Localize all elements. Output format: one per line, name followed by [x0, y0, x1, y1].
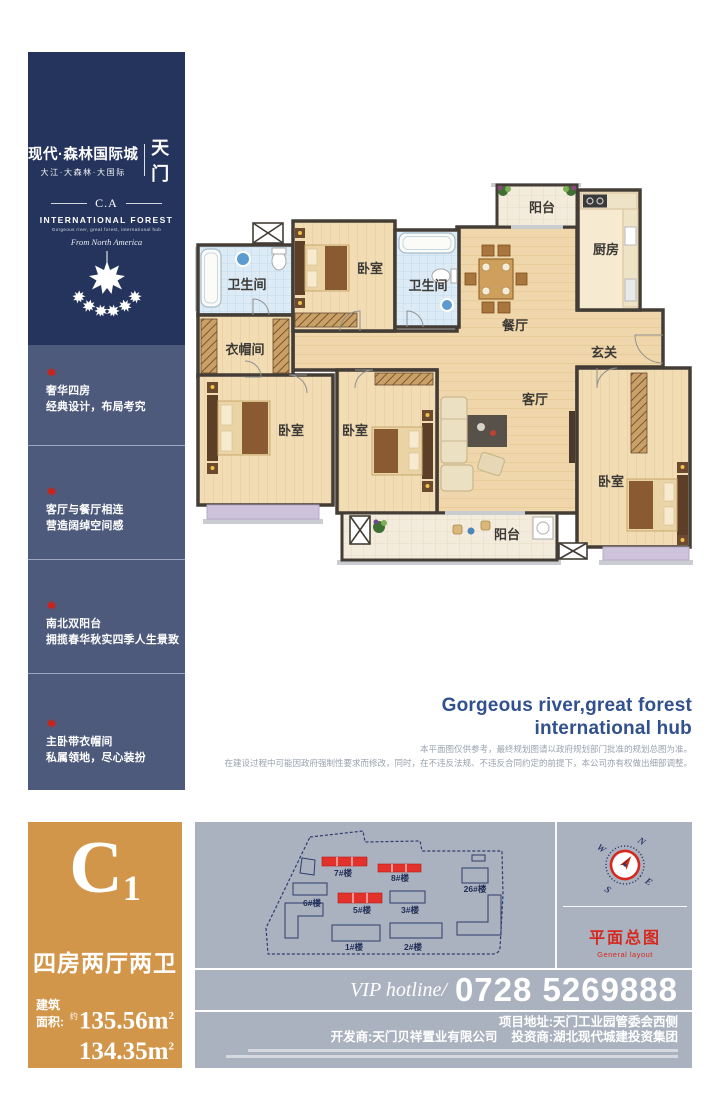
project-address: 项目地址:天门工业园管委会西侧 [195, 1015, 678, 1030]
panel-vertical-divider [555, 822, 557, 968]
building-label-2: 2#楼 [404, 942, 422, 952]
brand-en-tagline: Gorgeous river, great forest, internatio… [52, 227, 161, 232]
compass-divider [563, 906, 687, 907]
red-leaf-icon [46, 367, 57, 378]
label-balcony-bottom: 阳台 [494, 527, 520, 542]
label-bath1: 卫生间 [227, 277, 266, 292]
developer: 开发商:天门贝祥置业有限公司 [331, 1030, 498, 1044]
selling-point-3-line2: 拥揽春华秋实四季人生景致 [46, 632, 185, 648]
label-dining: 餐厅 [501, 318, 528, 333]
legend-title: 平面总图 [563, 924, 687, 948]
compass-icon: N E S W [580, 826, 670, 904]
selling-point-1-line1: 奢华四房 [46, 383, 185, 399]
brand-divider [144, 144, 145, 176]
vip-hotline: VIP hotline/ 0728 5269888 [195, 970, 692, 1010]
site-plan: 7#楼 8#楼 26#楼 6#楼 5#楼 3#楼 1#楼 2#楼 [250, 828, 515, 966]
bay-sill-left [207, 505, 319, 519]
label-living: 客厅 [522, 392, 548, 407]
tagline-line1: Gorgeous river,great forest [442, 694, 692, 717]
brand-monogram: C.A [95, 196, 118, 211]
red-leaf-icon [46, 600, 57, 611]
investor: 投资商:湖北现代城建投资集团 [511, 1030, 678, 1044]
selling-point-1: 奢华四房 经典设计，布局考究 [28, 345, 185, 445]
building-label-1: 1#楼 [345, 942, 363, 952]
label-kitchen: 厨房 [593, 242, 619, 257]
sidebar: 现代·森林国际城 大江·大森林·大国际 天门 C.A INTERNATIONAL… [28, 52, 185, 790]
unit-code: C1 [28, 828, 182, 928]
disclaimer: 本平面图仅供参考，最终规划图请以政府规划部门批准的规划总图为准。 在建设过程中可… [224, 742, 692, 770]
building-label-3: 3#楼 [401, 905, 419, 915]
selling-point-4-line2: 私属领地，尽心装扮 [46, 750, 185, 766]
unit-code-number: 1 [123, 868, 141, 908]
siteplan-legend: 平面总图 General layout [563, 924, 687, 959]
selling-point-3: 南北双阳台 拥揽春华秋实四季人生景致 [28, 559, 185, 673]
compass-w: W [594, 843, 607, 856]
label-balcony-top: 阳台 [529, 200, 555, 215]
unit-area: 建筑面积: 约 135.56m2 134.35m2 [36, 996, 174, 1065]
brand-origin-script: From North America [71, 237, 142, 247]
label-bedroom-right: 卧室 [598, 474, 624, 489]
brand-box: 现代·森林国际城 大江·大森林·大国际 天门 C.A INTERNATIONAL… [28, 52, 185, 345]
bay-sill-right [603, 547, 689, 560]
selling-point-2: 客厅与餐厅相连 营造阔绰空间感 [28, 445, 185, 559]
label-bath2: 卫生间 [408, 278, 447, 293]
building-label-8: 8#楼 [391, 873, 409, 883]
compass-e: E [642, 876, 654, 888]
label-bedroom-mid: 卧室 [342, 423, 368, 438]
brand-subtitle: 大江·大森林·大国际 [41, 167, 126, 178]
legend-subtitle: General layout [563, 950, 687, 959]
unit-code-letter: C [69, 827, 122, 909]
compass-n: N [635, 835, 648, 848]
fine-print-line-1 [248, 1049, 678, 1052]
english-tagline: Gorgeous river,great forest internationa… [442, 694, 692, 740]
building-label-6: 6#楼 [303, 898, 321, 908]
hotline-number: 0728 5269888 [455, 971, 678, 1009]
brand-monogram-row: C.A [51, 196, 162, 211]
contact-block: 项目地址:天门工业园管委会西侧 开发商:天门贝祥置业有限公司投资商:湖北现代城建… [195, 1015, 678, 1045]
building-label-7: 7#楼 [334, 868, 352, 878]
brand-title: 现代·森林国际城 [28, 143, 138, 164]
monogram-line-right [126, 203, 162, 204]
maple-leaf-logo-icon [52, 249, 162, 325]
floorplan: 卫生间 衣帽间 卧室 卫生间 餐厅 阳台 厨房 玄关 客厅 卧室 卧室 卧室 阳… [195, 183, 700, 578]
disclaimer-line2: 在建设过程中可能因政府强制性要求而修改，同时，在不违反法规、不违反合同约定的前提… [224, 756, 692, 770]
selling-point-2-line1: 客厅与餐厅相连 [46, 502, 185, 518]
label-foyer: 玄关 [591, 345, 617, 360]
selling-point-1-line2: 经典设计，布局考究 [46, 399, 185, 415]
monogram-line-left [51, 203, 87, 204]
tagline-line2: international hub [442, 717, 692, 740]
fine-print-line-2 [226, 1055, 678, 1058]
building-label-26: 26#楼 [464, 884, 487, 894]
building-label-5: 5#楼 [353, 905, 371, 915]
red-leaf-icon [46, 718, 57, 729]
label-bedroom-top: 卧室 [357, 261, 383, 276]
area-value-1: 135.56m2 [79, 1003, 174, 1034]
brand-en-name: INTERNATIONAL FOREST [40, 215, 173, 225]
brochure-page: 现代·森林国际城 大江·大森林·大国际 天门 C.A INTERNATIONAL… [0, 0, 720, 1115]
compass-s: S [602, 885, 612, 896]
area-approx: 约 [70, 1011, 78, 1022]
hotline-prefix: VIP hotline/ [350, 979, 447, 1002]
label-bedroom-left: 卧室 [278, 423, 304, 438]
label-cloak: 衣帽间 [225, 342, 264, 357]
brand-row: 现代·森林国际城 大江·大森林·大国际 天门 [28, 134, 185, 186]
bottom-panel: 7#楼 8#楼 26#楼 6#楼 5#楼 3#楼 1#楼 2#楼 N [195, 822, 692, 1068]
selling-point-4-line1: 主卧带衣帽间 [46, 734, 185, 750]
brand-city: 天门 [151, 134, 185, 186]
unit-info-box: C1 四房两厅两卫 建筑面积: 约 135.56m2 134.35m2 [28, 822, 182, 1068]
area-value-2: 134.35m2 [79, 1038, 174, 1065]
room-balcony-bottom [342, 513, 557, 560]
developer-line: 开发商:天门贝祥置业有限公司投资商:湖北现代城建投资集团 [195, 1030, 678, 1045]
selling-point-3-line1: 南北双阳台 [46, 616, 185, 632]
disclaimer-line1: 本平面图仅供参考，最终规划图请以政府规划部门批准的规划总图为准。 [224, 742, 692, 756]
area-label: 建筑面积: [36, 996, 68, 1030]
panel-hline-2 [195, 1010, 692, 1012]
selling-point-4: 主卧带衣帽间 私属领地，尽心装扮 [28, 673, 185, 790]
selling-point-2-line2: 营造阔绰空间感 [46, 518, 185, 534]
red-leaf-icon [46, 486, 57, 497]
unit-layout: 四房两厅两卫 [28, 944, 182, 978]
